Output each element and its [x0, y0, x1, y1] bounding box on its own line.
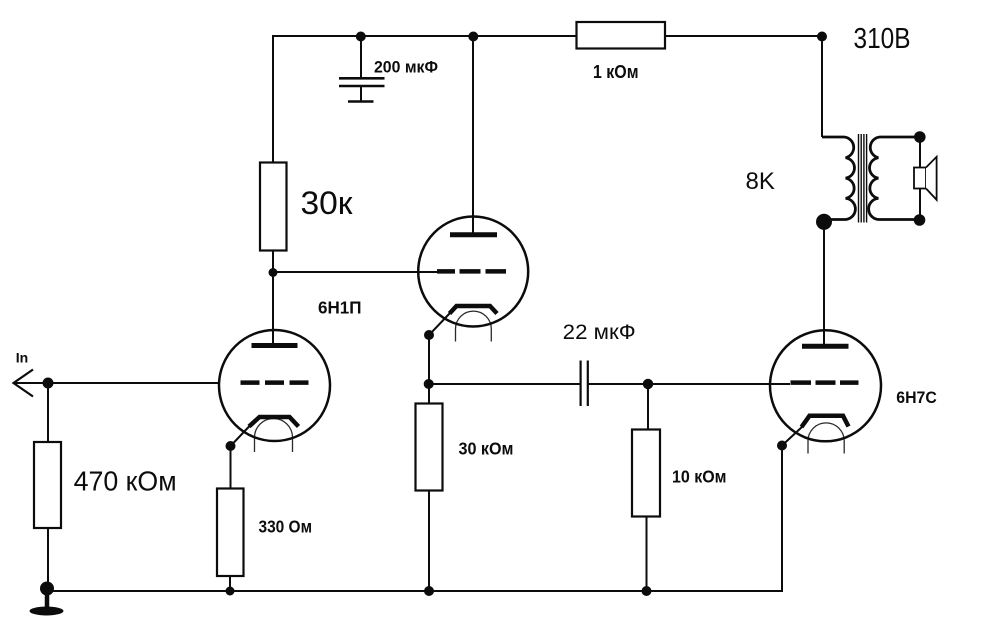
svg-text:200 мкФ: 200 мкФ: [374, 57, 438, 76]
svg-text:6Н1П: 6Н1П: [318, 298, 362, 318]
svg-text:22 мкФ: 22 мкФ: [563, 321, 636, 344]
svg-text:330 Ом: 330 Ом: [259, 516, 313, 536]
svg-text:10 кОм: 10 кОм: [672, 467, 727, 487]
svg-text:30 кОм: 30 кОм: [459, 439, 514, 459]
svg-text:310В: 310В: [854, 23, 911, 55]
svg-text:470 кОм: 470 кОм: [74, 466, 177, 497]
svg-text:6Н7С: 6Н7С: [896, 389, 937, 407]
svg-text:8K: 8K: [746, 168, 775, 195]
svg-text:In: In: [16, 350, 28, 366]
svg-text:30к: 30к: [301, 184, 354, 221]
svg-text:1 кОм: 1 кОм: [593, 61, 639, 82]
